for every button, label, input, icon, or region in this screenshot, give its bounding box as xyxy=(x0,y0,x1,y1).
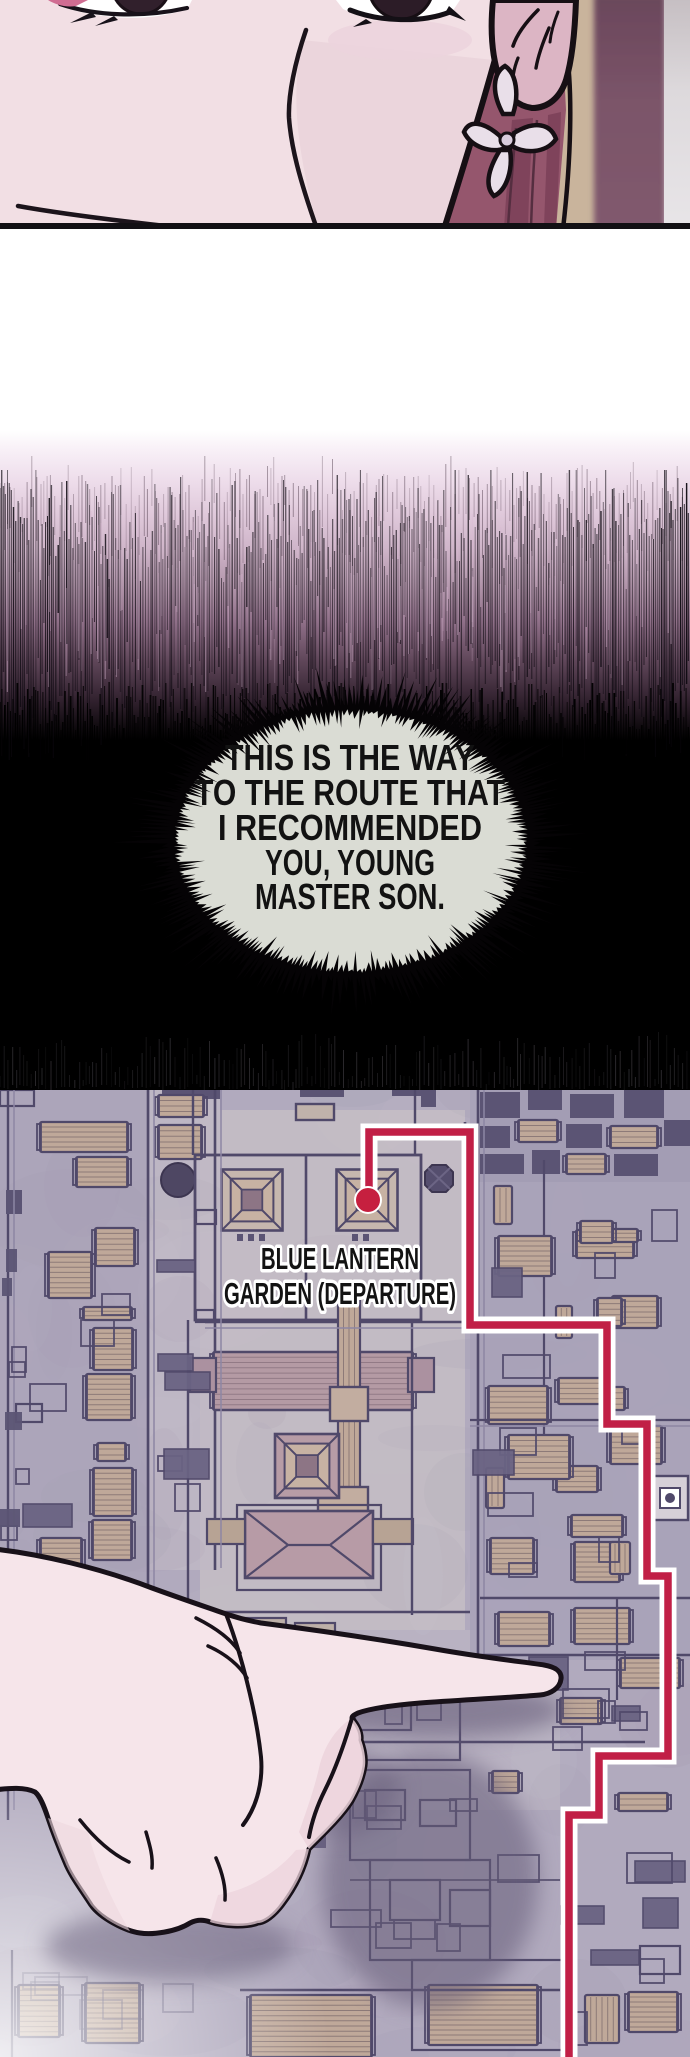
svg-text:MASTER SON.: MASTER SON. xyxy=(255,876,445,917)
svg-text:GARDEN (DEPARTURE): GARDEN (DEPARTURE) xyxy=(224,1276,456,1311)
svg-text:BLUE LANTERN: BLUE LANTERN xyxy=(261,1241,419,1276)
